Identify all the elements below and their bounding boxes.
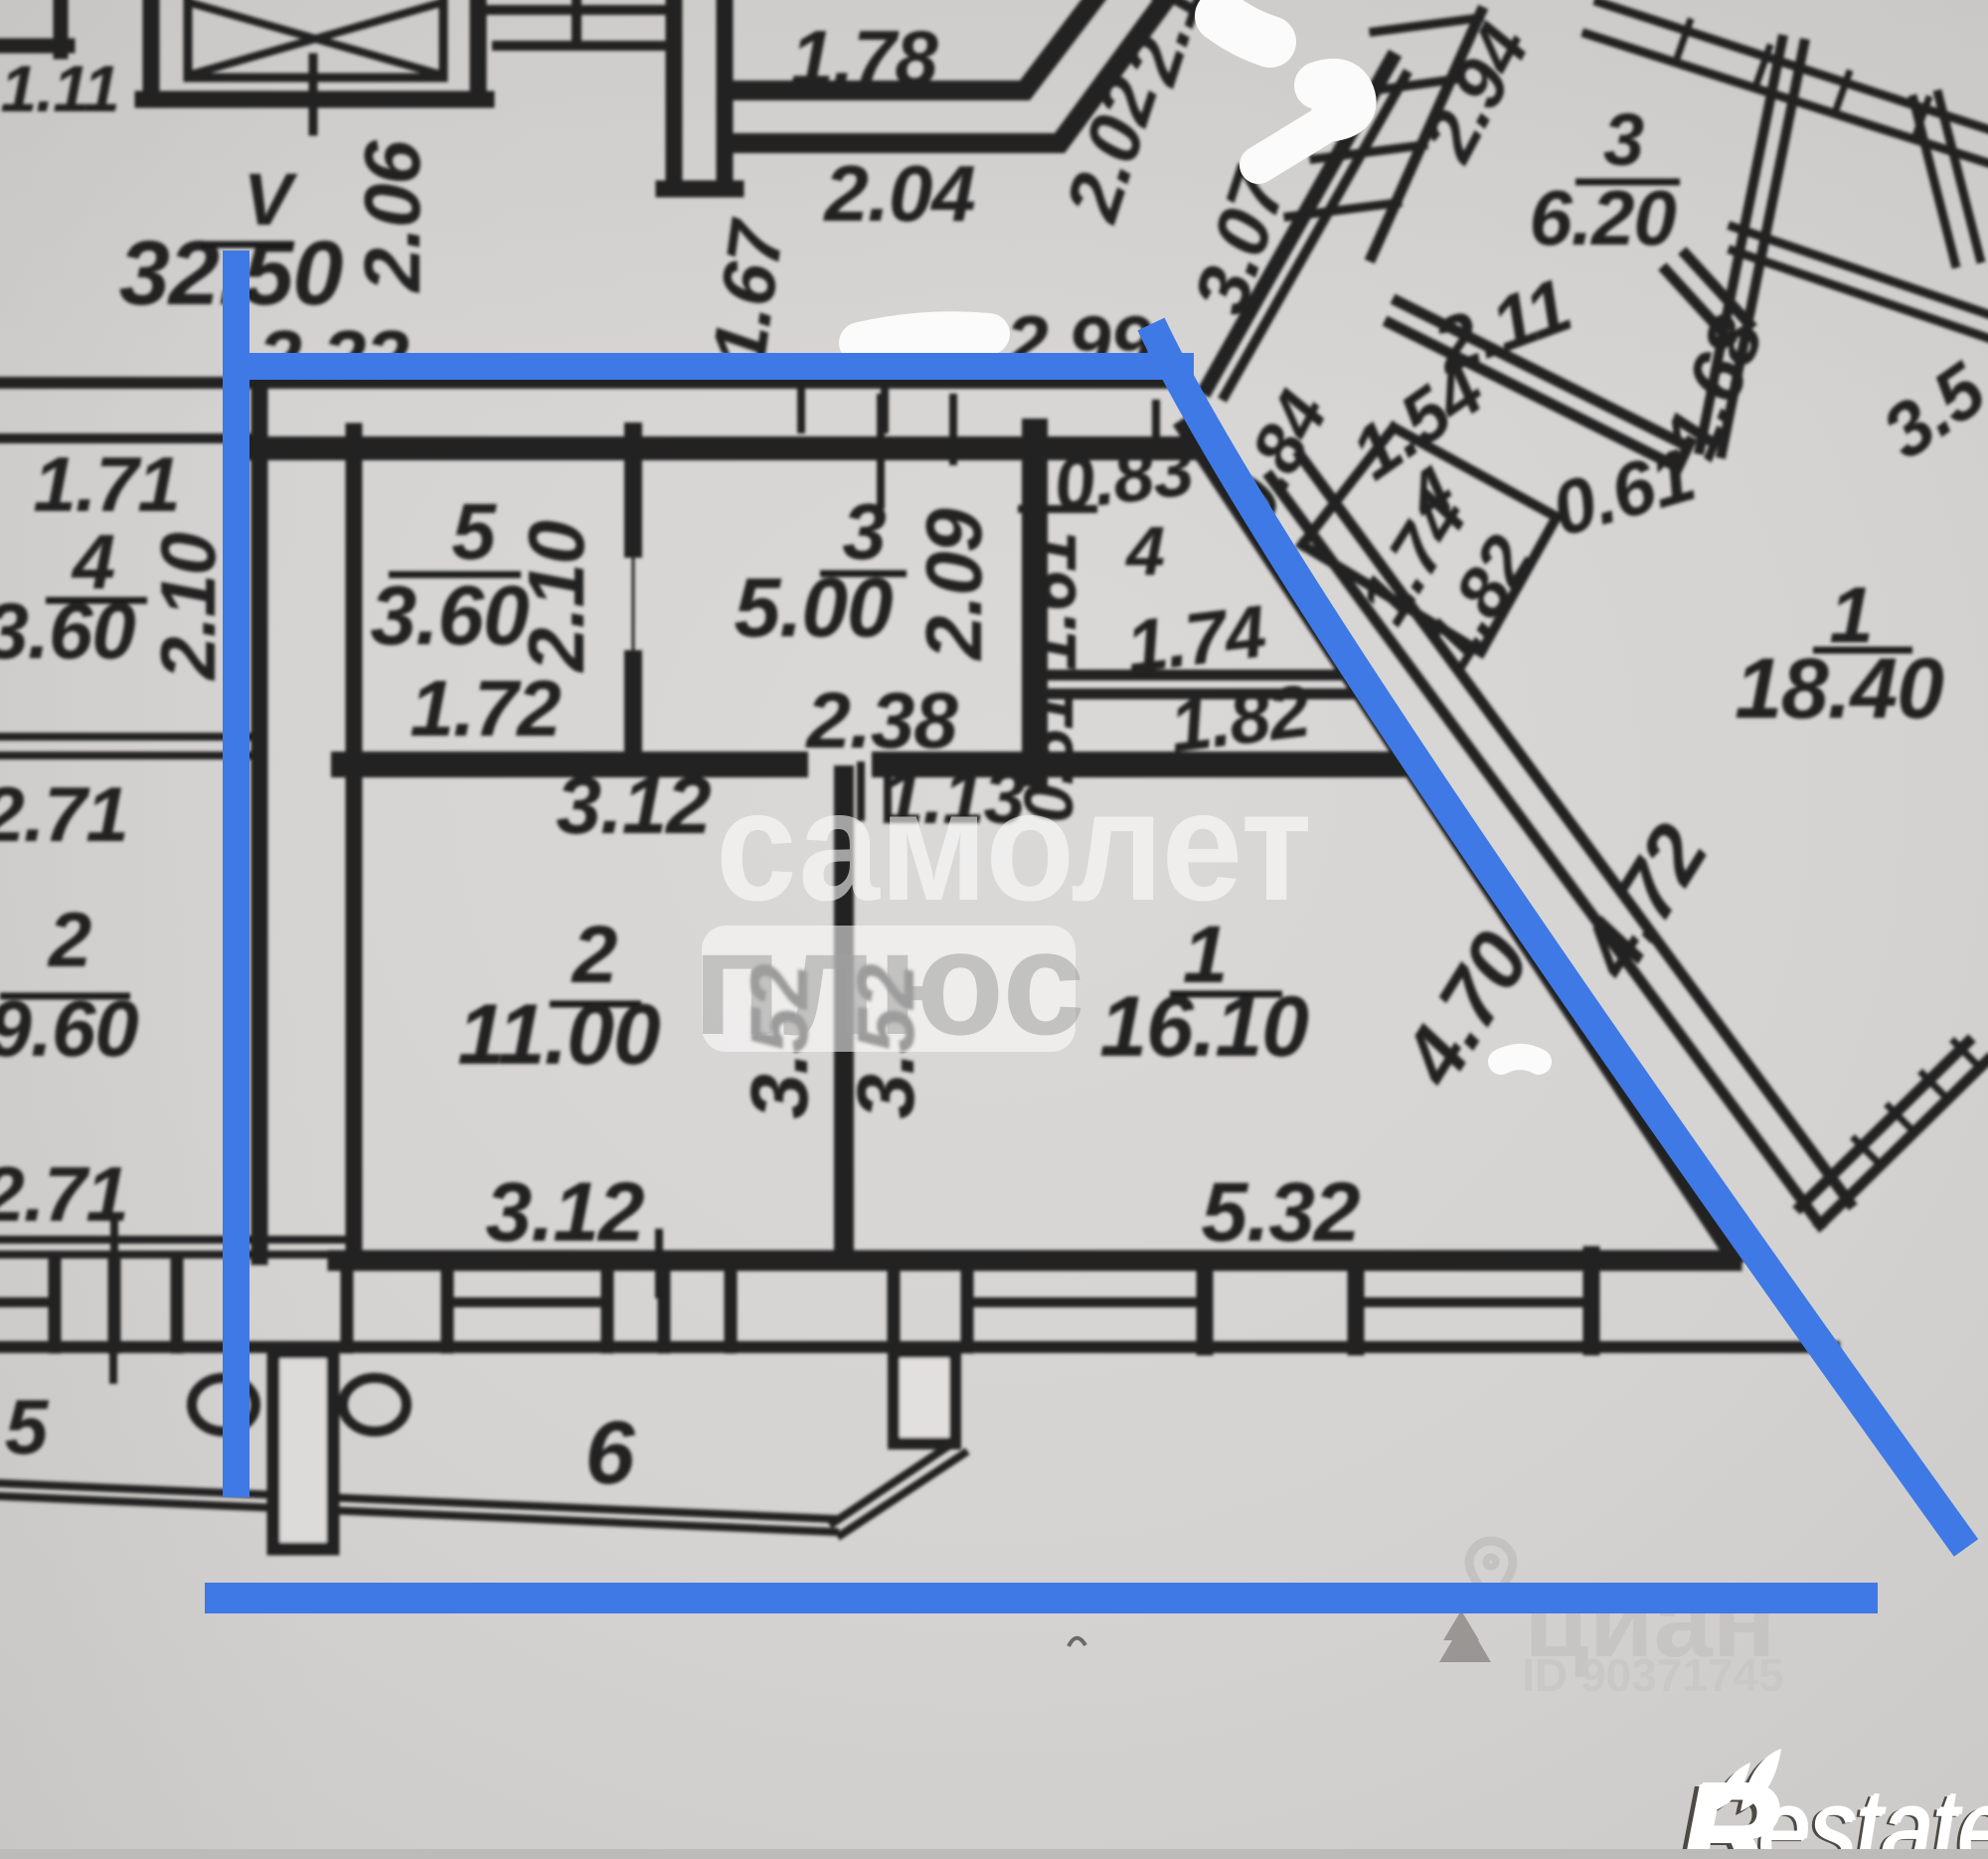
svg-text:6.20: 6.20 — [1529, 174, 1676, 261]
svg-text:11.00: 11.00 — [457, 987, 660, 1083]
svg-text:2.06: 2.06 — [348, 140, 436, 294]
svg-text:1.71: 1.71 — [33, 440, 179, 528]
svg-text:1.78: 1.78 — [790, 14, 938, 101]
svg-text:1.61: 1.61 — [1009, 532, 1091, 671]
svg-text:18.40: 18.40 — [1735, 641, 1943, 737]
svg-text:6: 6 — [585, 1404, 636, 1503]
svg-text:0.83: 0.83 — [1050, 427, 1199, 527]
svg-text:ID 90371745: ID 90371745 — [1522, 1649, 1783, 1701]
svg-text:2.10: 2.10 — [512, 521, 600, 674]
svg-text:16.10: 16.10 — [1099, 979, 1308, 1075]
svg-text:3.12: 3.12 — [556, 760, 711, 851]
svg-text:5.00: 5.00 — [734, 561, 892, 654]
svg-text:3: 3 — [1603, 98, 1644, 181]
svg-text:2.38: 2.38 — [804, 676, 958, 764]
svg-text:3.12: 3.12 — [485, 1165, 643, 1259]
svg-text:2.10: 2.10 — [144, 533, 232, 682]
svg-text:2.71: 2.71 — [0, 1150, 128, 1238]
svg-text:5: 5 — [451, 487, 497, 576]
svg-text:5: 5 — [5, 1383, 50, 1470]
svg-text:3.60: 3.60 — [370, 569, 528, 662]
svg-text:3.60: 3.60 — [0, 587, 135, 675]
svg-text:1.74: 1.74 — [1122, 590, 1270, 688]
svg-text:плюс: плюс — [692, 899, 1084, 1066]
svg-text:1.82: 1.82 — [1166, 669, 1315, 768]
svg-text:5.32: 5.32 — [1201, 1165, 1359, 1259]
svg-text:2: 2 — [47, 896, 91, 983]
svg-text:9.60: 9.60 — [0, 984, 138, 1073]
svg-text:1.72: 1.72 — [410, 664, 561, 753]
svg-text:2.71: 2.71 — [0, 770, 128, 858]
svg-text:estate: estate — [1760, 1766, 1988, 1859]
svg-text:4: 4 — [1124, 512, 1164, 590]
svg-text:2.09: 2.09 — [910, 508, 998, 662]
svg-text:1.11: 1.11 — [0, 52, 118, 125]
svg-text:2.04: 2.04 — [822, 149, 975, 238]
